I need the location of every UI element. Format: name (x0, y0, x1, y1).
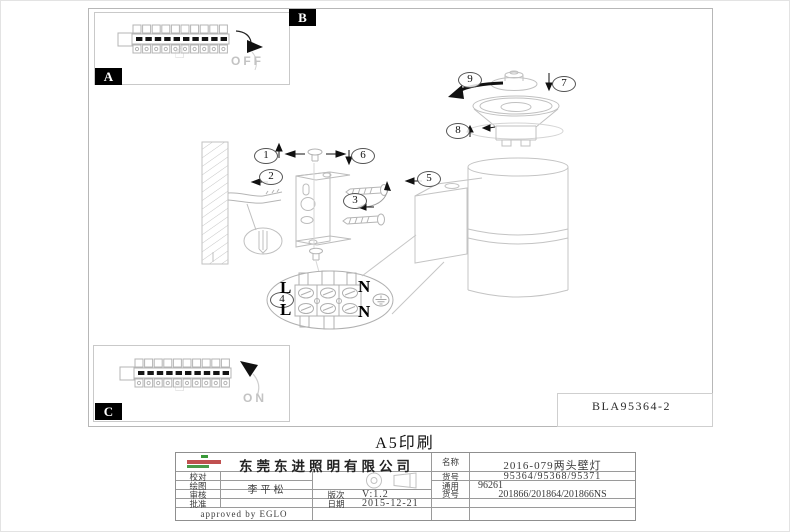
bottom-screw (310, 248, 323, 272)
detail-label-c: C (95, 403, 122, 420)
callout-9: 9 (458, 72, 482, 88)
drawing-sheet: A B C ☝ ☝ OFF ON 1 2 3 4 5 6 7 8 9 L N L… (0, 0, 790, 532)
title-block: 东莞东进照明有限公司 校对 绘图 审核 批准 李平松 版次 V:1.2 日期 2… (175, 452, 636, 521)
callout-3: 3 (343, 193, 367, 209)
cover-cap (491, 71, 537, 91)
field-approve-label: 批准 (176, 500, 220, 509)
field-common-item-value-line2: 201866/201864/201866NS (471, 490, 634, 500)
field-date-value: 2015-12-21 (362, 499, 430, 509)
detail-label-a: A (95, 68, 122, 85)
callout-7: 7 (552, 76, 576, 92)
pointing-hand-icon: ☝ (174, 377, 185, 395)
callout-8: 8 (446, 123, 470, 139)
terminal-label-n: N (358, 303, 370, 320)
top-screw (308, 149, 322, 161)
detail-leader-line (362, 235, 416, 276)
field-common-item-label-line2: 货号 (432, 490, 469, 499)
ground-symbol (373, 294, 389, 306)
wall-anchor-detail (244, 204, 282, 254)
mounting-bracket (296, 163, 351, 248)
callout-1: 1 (254, 148, 278, 164)
field-draw-value: 李平松 (222, 481, 312, 496)
detail-label-b: B (289, 9, 316, 26)
switch-off-label: OFF (231, 54, 264, 68)
callout-5: 5 (417, 171, 441, 187)
pointing-hand-icon: ☝ (174, 44, 185, 62)
approved-note: approved by EGLO (176, 509, 312, 519)
terminal-label-l: L (280, 279, 291, 296)
drawing-number: BLA95364-2 (592, 399, 671, 414)
projection-symbol-icon (336, 472, 428, 489)
lamp-module (469, 96, 563, 146)
callout-6: 6 (351, 148, 375, 164)
lamp-body-cylinder (468, 158, 568, 297)
print-title: A5印刷 (330, 429, 480, 453)
callout-2: 2 (259, 169, 283, 185)
switch-on-label: ON (243, 391, 267, 405)
field-date-label: 日期 (316, 500, 356, 509)
dongjin-logo (184, 455, 226, 469)
detail-leader-line (392, 262, 444, 314)
terminal-label-l: L (280, 301, 291, 318)
wall-section (202, 142, 228, 264)
terminal-label-n: N (358, 278, 370, 295)
assembly-arrows (252, 73, 552, 210)
field-name-label: 名称 (432, 458, 469, 467)
lamp-mount-plate (415, 178, 482, 263)
mains-wires (228, 189, 282, 203)
